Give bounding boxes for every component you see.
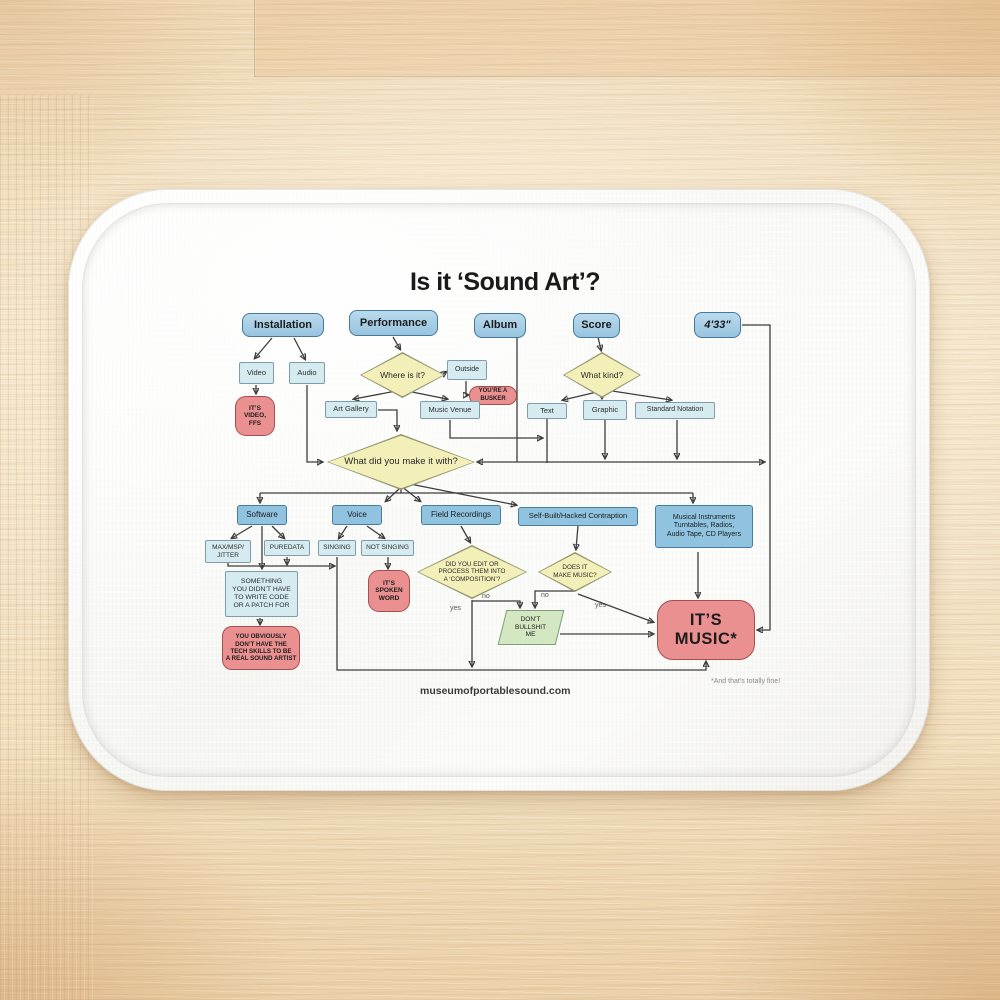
footnote: *And that’s totally fine!: [711, 678, 780, 685]
node-dont-bullshit-me: DON’T BULLSHIT ME: [498, 610, 565, 645]
node-self-built-hacked-contraption: Self-Built/Hacked Contraption: [518, 507, 638, 526]
node-its-music: IT’S MUSIC*: [657, 600, 755, 660]
node-software: Software: [237, 505, 287, 525]
edge-label-no-composition: no: [482, 593, 490, 600]
node-field-recordings: Field Recordings: [421, 505, 501, 525]
node-what-did-you-make-it-with: What did you make it with?: [327, 434, 475, 490]
node-outside: Outside: [447, 360, 487, 380]
node-score: Score: [573, 313, 620, 338]
node-graphic: Graphic: [583, 400, 627, 420]
chart-title: Is it ‘Sound Art’?: [305, 268, 705, 297]
node-album: Album: [474, 313, 526, 338]
node-musical-instruments: Musical Instruments Turntables, Radios, …: [655, 505, 753, 548]
node-does-it-make-music: DOES IT MAKE MUSIC?: [538, 552, 612, 592]
node-music-venue: Music Venue: [420, 401, 480, 419]
node-art-gallery: Art Gallery: [325, 401, 377, 418]
node-did-you-edit: DID YOU EDIT OR PROCESS THEM INTO A ‘COM…: [417, 545, 527, 599]
edge-label-yes-composition: yes: [450, 605, 461, 612]
node-voice: Voice: [332, 505, 382, 525]
node-standard-notation: Standard Notation: [635, 402, 715, 419]
node-its-spoken-word: IT’S SPOKEN WORD: [368, 570, 410, 612]
flowchart: Is it ‘Sound Art’? Installation Performa…: [0, 0, 1000, 1000]
node-its-video-ffs: IT’S VIDEO, FFS: [235, 396, 275, 436]
flowchart-edges: [0, 0, 1000, 1000]
edge-label-no-music: no: [541, 592, 549, 599]
node-singing: SINGING: [318, 540, 356, 556]
node-audio: Audio: [289, 362, 325, 384]
website-url: museumofportablesound.com: [420, 685, 571, 697]
node-something-no-code: SOMETHING YOU DIDN’T HAVE TO WRITE CODE …: [225, 571, 298, 617]
node-video: Video: [239, 362, 274, 384]
node-performance: Performance: [349, 310, 438, 336]
node-what-kind: What kind?: [563, 352, 641, 398]
edge-label-yes-music: yes: [595, 602, 606, 609]
node-not-singing: NOT SINGING: [361, 540, 414, 556]
node-where-is-it: Where is it?: [360, 352, 445, 398]
node-max-msp-jitter: MAX/MSP/ JITTER: [205, 540, 251, 563]
node-text: Text: [527, 403, 567, 419]
node-puredata: PUREDATA: [264, 540, 310, 556]
node-installation: Installation: [242, 313, 324, 337]
node-no-tech-skills: YOU OBVIOUSLY DON’T HAVE THE TECH SKILLS…: [222, 626, 300, 670]
node-4-33: 4'33": [694, 312, 741, 338]
